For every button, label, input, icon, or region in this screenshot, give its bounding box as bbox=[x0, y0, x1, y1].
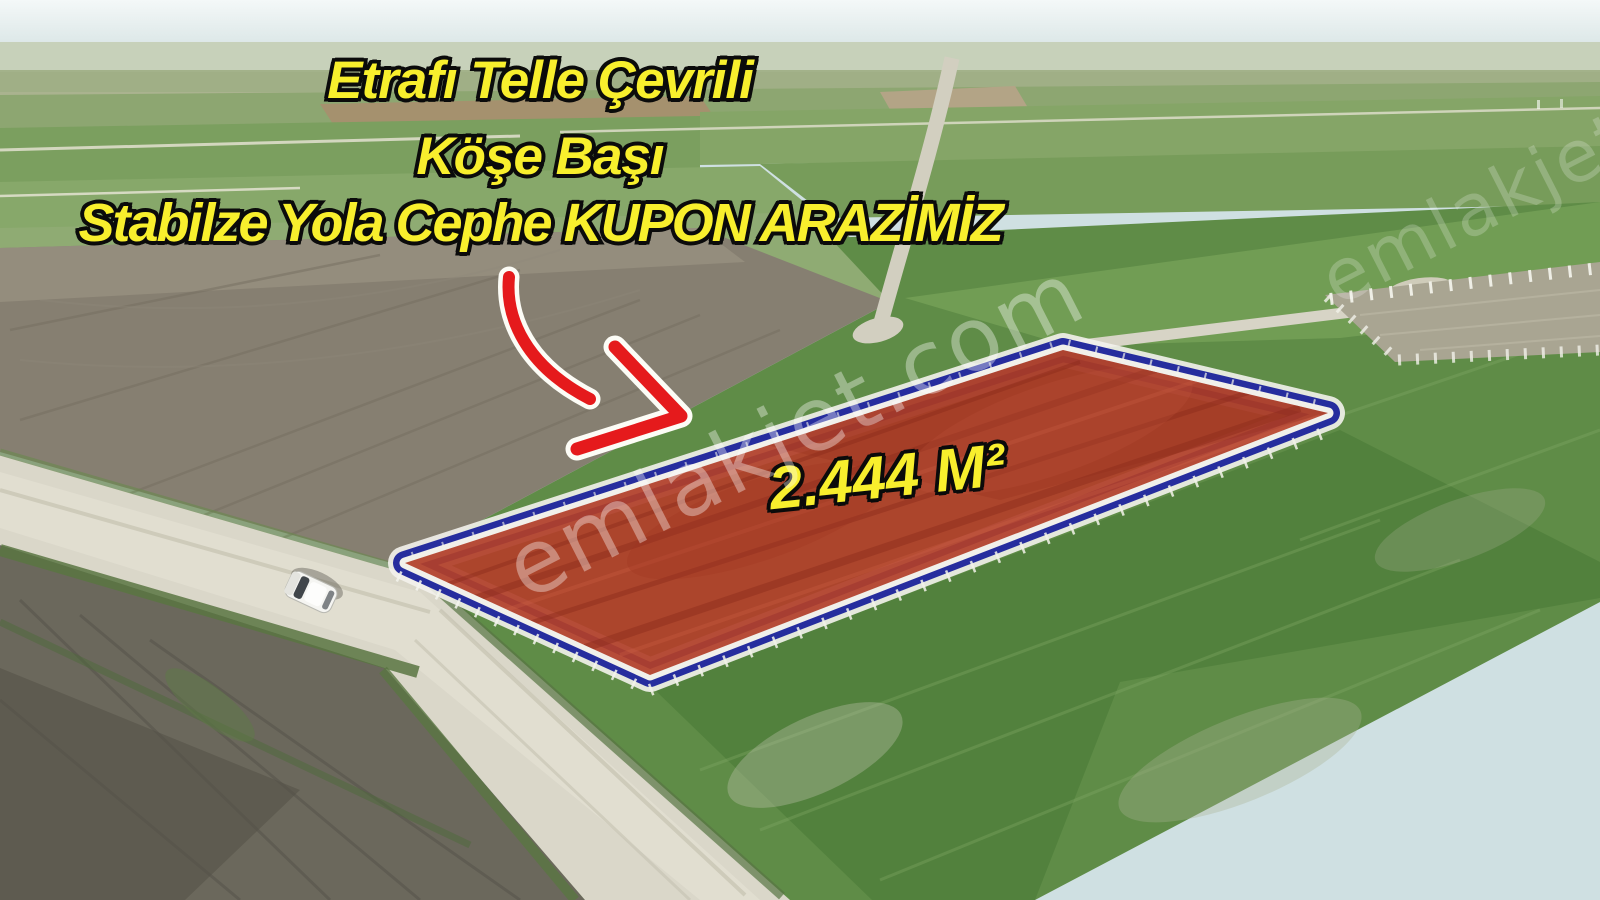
real-estate-listing-photo: Etrafı Telle Çevrili Köşe Başı Stabilze … bbox=[0, 0, 1600, 900]
caption-line-1: Etrafı Telle Çevrili bbox=[0, 50, 1080, 111]
caption-line-3: Stabilze Yola Cephe KUPON ARAZİMİZ bbox=[0, 192, 1080, 254]
caption-line-2: Köşe Başı bbox=[0, 126, 1080, 187]
